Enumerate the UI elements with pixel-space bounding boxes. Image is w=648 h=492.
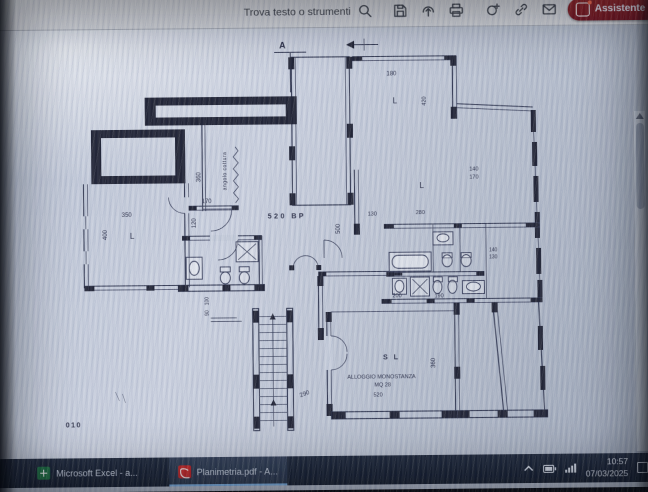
- plan-label-alloggio: ALLOGGIO MONOSTANZA: [347, 374, 416, 381]
- plan-dim-190: 190: [434, 293, 443, 299]
- wc-fixture: [220, 267, 230, 272]
- add-comment-button[interactable]: [484, 0, 503, 19]
- taskbar-clock[interactable]: 10:57 07/03/2025: [586, 457, 629, 480]
- plan-dim-350: 350: [122, 213, 133, 219]
- plan-dim-360: 360: [196, 171, 202, 182]
- share-icon: [421, 3, 436, 18]
- room-monostanza: S L 360 ALLOGGIO MONOSTANZA MQ 28 520: [325, 303, 461, 419]
- link-icon: [514, 2, 529, 17]
- scrollbar-track[interactable]: [633, 111, 648, 451]
- taskbar-item-excel[interactable]: Microsoft Excel - a...: [28, 458, 147, 488]
- windows-taskbar: Microsoft Excel - a... Planimetria.pdf -…: [0, 453, 648, 488]
- plan-room-l3: L: [419, 181, 424, 190]
- plan-dim-140a: 140: [469, 167, 478, 173]
- terrace-wall-north: [145, 96, 297, 125]
- search-field[interactable]: Trova testo o strumenti: [244, 4, 373, 20]
- terrace-wall-west: [91, 129, 186, 184]
- plan-dim-280: 280: [416, 210, 425, 216]
- email-button[interactable]: [540, 0, 559, 19]
- faint-marks: [115, 392, 125, 403]
- staircase: 290: [253, 308, 312, 431]
- ai-assistant-label: Assistente IA: [595, 3, 648, 15]
- plan-dim-130b: 130: [489, 254, 498, 260]
- taskbar-item-label: Planimetria.pdf - A...: [197, 466, 278, 477]
- corridor-wall: 170 120: [189, 199, 239, 231]
- tray-time: 10:57: [586, 457, 629, 468]
- battery-icon[interactable]: [544, 464, 557, 472]
- ai-assistant-button[interactable]: Assistente IA: [568, 0, 648, 20]
- search-placeholder: Trova testo o strumenti: [244, 5, 351, 18]
- outer-wall-east: 140 170 L: [419, 110, 543, 299]
- plan-dim-170: 170: [202, 199, 213, 205]
- link-button[interactable]: [512, 0, 531, 19]
- save-button[interactable]: [391, 1, 410, 20]
- taskbar-item-label: Microsoft Excel - a...: [56, 467, 138, 478]
- share-button[interactable]: [419, 1, 438, 20]
- bidet-fixture: [239, 267, 249, 272]
- room-bottom-right: [457, 302, 548, 418]
- plan-dim-360b: 360: [431, 357, 437, 368]
- plan-label-sl: S L: [383, 354, 400, 361]
- network-icon[interactable]: [566, 464, 577, 473]
- plan-dim-170b: 170: [469, 175, 478, 181]
- taskbar-item-planimetria[interactable]: Planimetria.pdf - A...: [169, 456, 287, 486]
- comment-plus-icon: [486, 2, 501, 17]
- print-button[interactable]: [447, 1, 466, 20]
- plan-dim-90: 90: [205, 310, 211, 316]
- plan-dim-500: 500: [336, 223, 342, 234]
- central-wall: [288, 169, 403, 340]
- plan-dim-400: 400: [103, 229, 109, 240]
- scrollbar-up-icon[interactable]: [636, 113, 644, 119]
- tray-chevron-icon[interactable]: [524, 465, 535, 472]
- room-left: 350 L 400: [81, 183, 190, 291]
- search-icon: [358, 4, 373, 19]
- monitor-content: Trova testo o strumenti: [0, 0, 648, 492]
- plan-dim-130a: 130: [368, 211, 377, 217]
- floorplan-page: A: [0, 25, 646, 459]
- plan-label-mq28: MQ 28: [374, 382, 391, 388]
- plan-dim-200: 200: [392, 293, 401, 299]
- plan-dim-420: 420: [422, 96, 428, 105]
- bathroom-upper: 100 90: [178, 235, 265, 322]
- plan-label-520bp: 520 BP: [268, 213, 306, 220]
- stairwell-shaft: [288, 57, 353, 206]
- scrollbar-thumb[interactable]: [635, 123, 644, 209]
- document-viewport: A: [0, 25, 648, 459]
- room-top-right: 180 L 420: [352, 55, 533, 120]
- plan-dim-140b: 140: [489, 247, 498, 253]
- plan-label-angolo-cottura: angolo cottura: [222, 152, 228, 191]
- illegible-annotation: [211, 318, 242, 322]
- excel-icon: [37, 467, 50, 480]
- plan-room-l: L: [130, 232, 135, 241]
- plan-label-010: 010: [66, 422, 82, 429]
- plan-dim-120: 120: [192, 218, 198, 229]
- save-icon: [393, 3, 408, 18]
- ai-assistant-icon: [576, 2, 590, 16]
- acrobat-icon: [178, 465, 191, 478]
- plan-dim-100: 100: [205, 297, 211, 306]
- action-center-icon[interactable]: [637, 462, 648, 473]
- plan-dim-520b: 520: [373, 392, 382, 398]
- plan-dim-290: 290: [299, 390, 311, 399]
- tray-date: 07/03/2025: [586, 468, 629, 479]
- email-icon: [542, 2, 557, 17]
- plan-dim-180: 180: [386, 71, 397, 77]
- system-tray: 10:57 07/03/2025: [523, 453, 648, 483]
- printer-icon: [449, 3, 464, 18]
- plan-label-section: A: [279, 40, 286, 50]
- screen-photo: Trova testo o strumenti: [0, 0, 648, 492]
- bathrooms-right: 140 130 200 190: [381, 223, 543, 304]
- plan-room-l2: L: [393, 96, 398, 105]
